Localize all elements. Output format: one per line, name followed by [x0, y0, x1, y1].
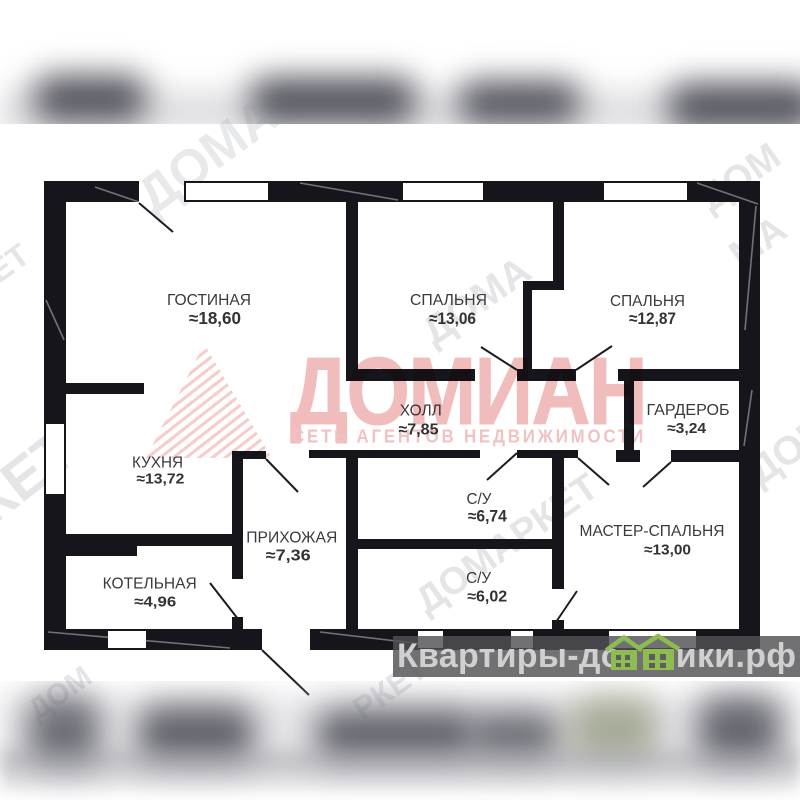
svg-text:СЕТЬ АГЕНТОВ НЕДВИЖИМОСТИ: СЕТЬ АГЕНТОВ НЕДВИЖИМОСТИ	[292, 427, 646, 447]
